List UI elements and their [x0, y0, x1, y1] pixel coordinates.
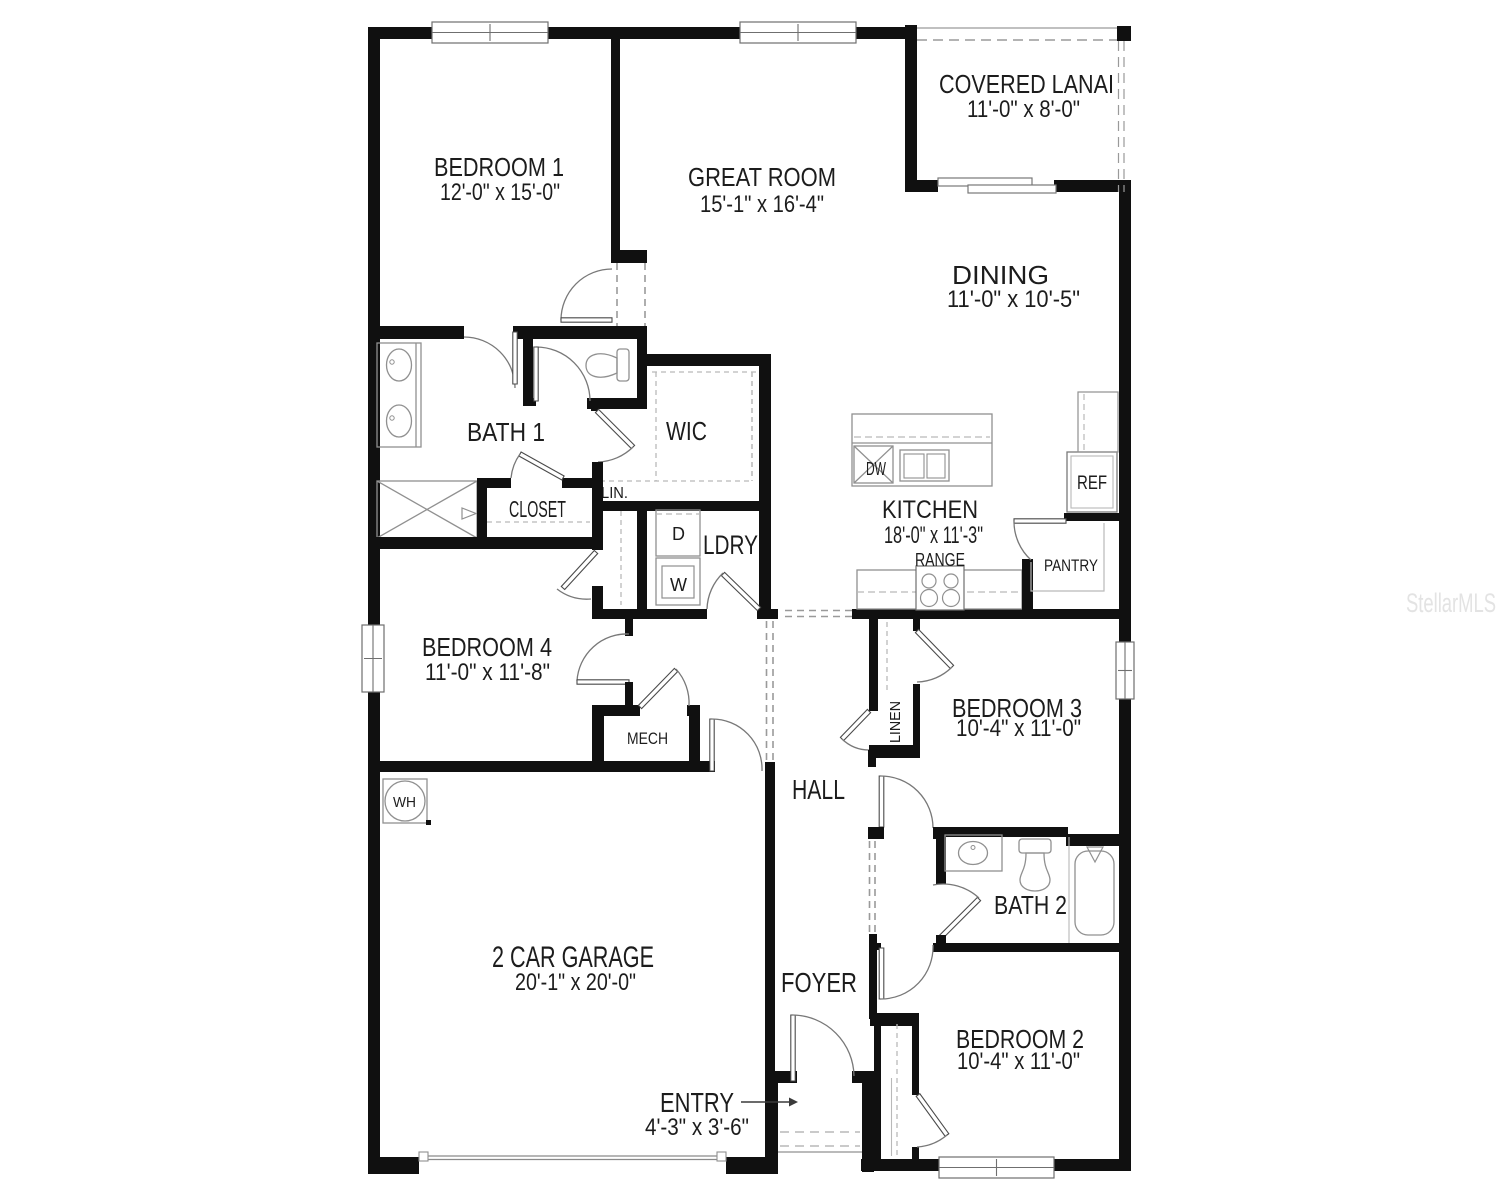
svg-text:BEDROOM 4: BEDROOM 4 [422, 632, 552, 662]
svg-text:FOYER: FOYER [781, 967, 857, 998]
svg-text:BATH 2: BATH 2 [994, 890, 1067, 920]
svg-text:StellarMLS: StellarMLS [1406, 588, 1496, 618]
svg-text:BATH 1: BATH 1 [467, 417, 545, 447]
svg-text:WH: WH [393, 794, 416, 811]
svg-text:GREAT ROOM: GREAT ROOM [688, 162, 836, 192]
svg-text:11'-0" x 8'-0": 11'-0" x 8'-0" [967, 96, 1080, 123]
svg-text:COVERED LANAI: COVERED LANAI [939, 69, 1114, 99]
svg-text:LDRY: LDRY [703, 530, 758, 560]
svg-text:15'-1" x 16'-4": 15'-1" x 16'-4" [700, 191, 824, 218]
svg-text:LIN.: LIN. [601, 485, 628, 502]
svg-text:CLOSET: CLOSET [509, 496, 566, 522]
svg-text:10'-4" x 11'-0": 10'-4" x 11'-0" [956, 715, 1081, 742]
svg-text:KITCHEN: KITCHEN [882, 496, 978, 524]
svg-text:PANTRY: PANTRY [1044, 556, 1098, 575]
svg-text:REF: REF [1077, 473, 1107, 494]
svg-text:RANGE: RANGE [915, 550, 965, 570]
svg-text:DW: DW [866, 459, 886, 479]
svg-text:4'-3" x 3'-6": 4'-3" x 3'-6" [645, 1114, 749, 1141]
svg-text:D: D [672, 524, 685, 544]
svg-text:BEDROOM 1: BEDROOM 1 [434, 152, 564, 182]
svg-text:W: W [670, 575, 687, 595]
svg-text:12'-0" x 15'-0": 12'-0" x 15'-0" [440, 179, 560, 206]
svg-text:10'-4" x 11'-0": 10'-4" x 11'-0" [957, 1048, 1080, 1075]
svg-text:20'-1" x 20'-0": 20'-1" x 20'-0" [515, 969, 636, 996]
svg-text:11'-0" x 10'-5": 11'-0" x 10'-5" [947, 286, 1080, 313]
svg-text:18'-0" x 11'-3": 18'-0" x 11'-3" [884, 522, 983, 549]
svg-text:MECH: MECH [627, 729, 668, 748]
svg-text:11'-0" x 11'-8": 11'-0" x 11'-8" [425, 659, 550, 686]
svg-text:LINEN: LINEN [887, 701, 904, 743]
svg-text:HALL: HALL [792, 774, 845, 805]
svg-text:WIC: WIC [666, 416, 707, 446]
